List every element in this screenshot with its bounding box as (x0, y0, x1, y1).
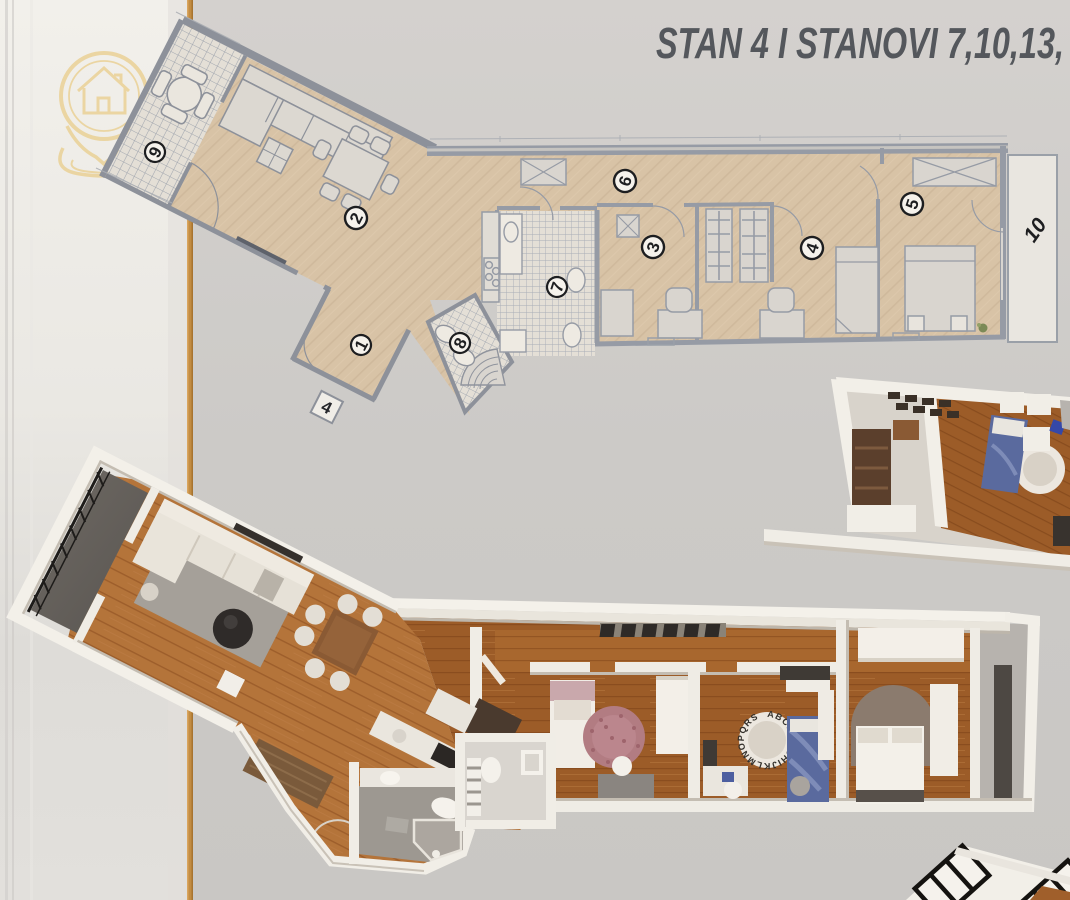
svg-text:STAN 4 I STANOVI 7,10,13,: STAN 4 I STANOVI 7,10,13, (656, 19, 1064, 68)
